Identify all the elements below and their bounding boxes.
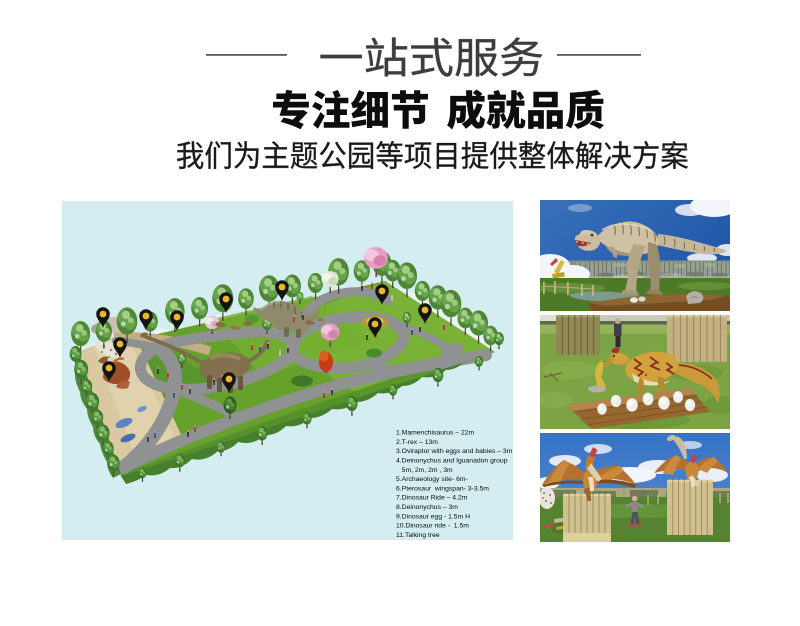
svg-text:1.Mamenchisaurus – 22m: 1.Mamenchisaurus – 22m	[396, 430, 475, 437]
svg-text:6.Pterosaur wingspan- 3-3.5m: 6.Pterosaur wingspan- 3-3.5m	[396, 485, 489, 492]
svg-text:7.Dinosaur Ride – 4.2m: 7.Dinosaur Ride – 4.2m	[396, 495, 468, 502]
svg-text:11.Talking tree: 11.Talking tree	[396, 532, 440, 539]
svg-text:5m, 2m, 2m , 3m: 5m, 2m, 2m , 3m	[396, 467, 453, 474]
svg-text:10.Dinosaur ride - 1.5m: 10.Dinosaur ride - 1.5m	[396, 523, 469, 530]
svg-text:2.T-rex – 13m: 2.T-rex – 13m	[396, 439, 438, 446]
svg-text:3.Oviraptor with eggs and babi: 3.Oviraptor with eggs and babies – 3m	[396, 448, 513, 455]
svg-text:9.Dinosaur egg - 1.5m H: 9.Dinosaur egg - 1.5m H	[396, 513, 470, 520]
svg-text:5.Archaeology site- 6m-: 5.Archaeology site- 6m-	[396, 476, 468, 483]
svg-text:4.Deinonychus and Iguanadon gr: 4.Deinonychus and Iguanadon group	[396, 458, 508, 465]
svg-text:8.Deinonychus – 3m: 8.Deinonychus – 3m	[396, 504, 458, 511]
